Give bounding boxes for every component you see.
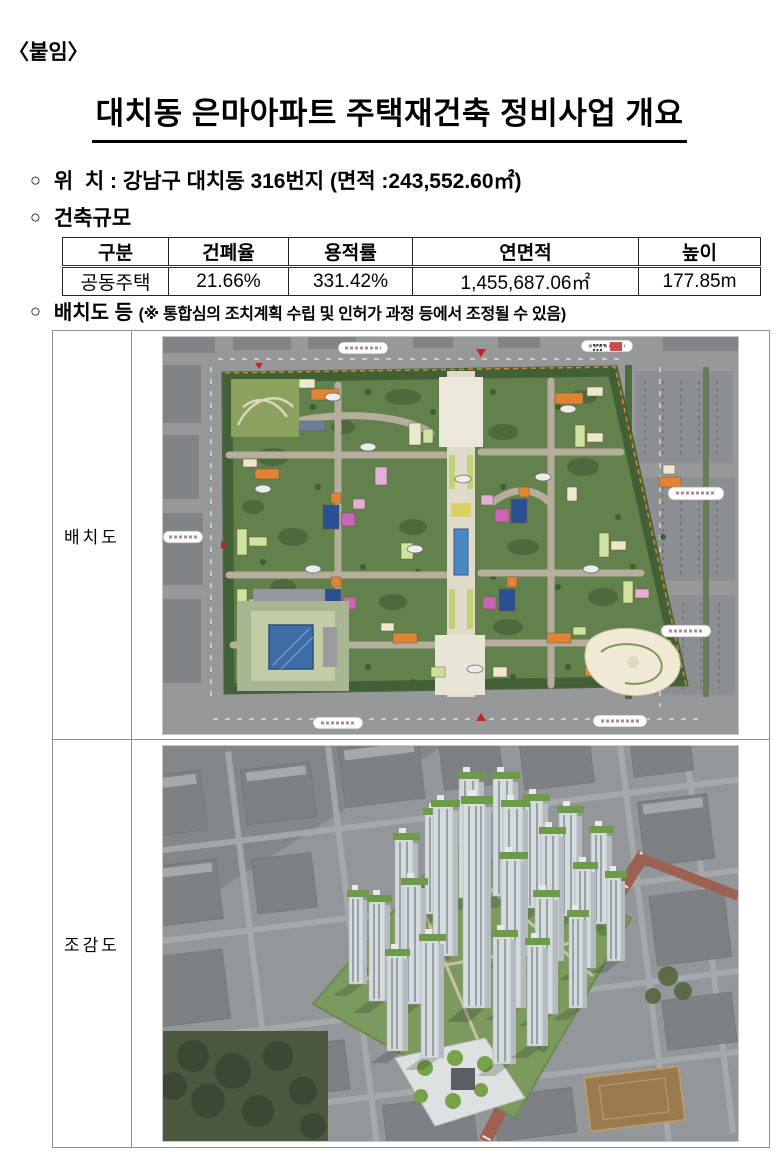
scale-cell-gross-floor-area: 1,455,687.06㎡ bbox=[413, 267, 639, 296]
birds-eye-cell bbox=[132, 740, 770, 1148]
building-scale-line: ○건축규모 bbox=[30, 202, 131, 232]
building-scale-heading: 건축규모 bbox=[54, 207, 131, 230]
site-plan-cell bbox=[132, 331, 770, 740]
layout-note: (※ 통합심의 조치계획 수립 및 인허가 과정 등에서 조정될 수 있음) bbox=[139, 306, 566, 323]
layout-line: ○배치도 등 (※ 통합심의 조치계획 수립 및 인허가 과정 등에서 조정될 … bbox=[30, 296, 566, 325]
location-label: 위 치 : bbox=[54, 170, 123, 193]
scale-header-height: 높이 bbox=[639, 238, 761, 267]
birds-eye-row: 조감도 bbox=[53, 740, 770, 1148]
attachment-label: 〈붙임〉 bbox=[8, 36, 89, 66]
site-plan-label: 배치도 bbox=[53, 331, 132, 740]
figure-table: 배치도 bbox=[52, 330, 770, 1148]
scale-table-data-row: 공동주택 21.66% 331.42% 1,455,687.06㎡ 177.85… bbox=[63, 267, 761, 296]
circle-bullet-icon: ○ bbox=[30, 170, 41, 190]
building-scale-table: 구분 건폐율 용적률 연면적 높이 공동주택 21.66% 331.42% 1,… bbox=[62, 237, 761, 296]
scale-cell-category: 공동주택 bbox=[63, 267, 169, 296]
circle-bullet-icon: ○ bbox=[30, 207, 41, 227]
document-page: 〈붙임〉 대치동 은마아파트 주택재건축 정비사업 개요 ○위 치 : 강남구 … bbox=[0, 0, 779, 1158]
layout-heading: 배치도 등 bbox=[54, 302, 139, 324]
scale-cell-floor-area-ratio: 331.42% bbox=[289, 267, 413, 296]
scale-header-floor-area-ratio: 용적률 bbox=[289, 238, 413, 267]
scale-cell-height: 177.85m bbox=[639, 267, 761, 296]
location-line: ○위 치 : 강남구 대치동 316번지 (면적 :243,552.60㎡) bbox=[30, 165, 522, 195]
page-title: 대치동 은마아파트 주택재건축 정비사업 개요 bbox=[92, 88, 688, 143]
birds-eye-figure bbox=[162, 745, 739, 1142]
site-plan-figure bbox=[162, 336, 739, 735]
scale-cell-coverage: 21.66% bbox=[169, 267, 289, 296]
scale-header-category: 구분 bbox=[63, 238, 169, 267]
circle-bullet-icon: ○ bbox=[30, 301, 41, 321]
birds-eye-label: 조감도 bbox=[53, 740, 132, 1148]
site-plan-row: 배치도 bbox=[53, 331, 770, 740]
location-value: 강남구 대치동 316번지 (면적 :243,552.60㎡) bbox=[123, 170, 522, 193]
scale-header-gross-floor-area: 연면적 bbox=[413, 238, 639, 267]
scale-table-header-row: 구분 건폐율 용적률 연면적 높이 bbox=[63, 238, 761, 267]
title-row: 대치동 은마아파트 주택재건축 정비사업 개요 bbox=[0, 88, 779, 143]
scale-header-coverage: 건폐율 bbox=[169, 238, 289, 267]
